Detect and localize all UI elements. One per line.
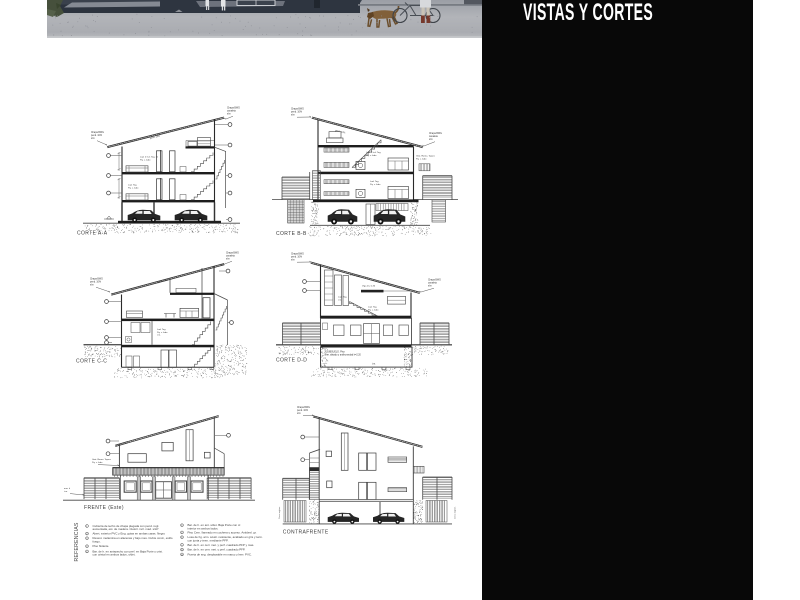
svg-text:CORTE D-D: CORTE D-D: [276, 358, 307, 364]
svg-text:Chapa BWG: Chapa BWG: [227, 108, 240, 110]
svg-text:Chapa BWG: Chapa BWG: [90, 279, 103, 281]
svg-text:Pq. s. lado: Pq. s. lado: [370, 184, 381, 186]
svg-text:s/m: s/m: [90, 284, 94, 286]
svg-text:t.m.: t.m.: [157, 334, 161, 337]
svg-text:Lad. Teg.: Lad. Teg.: [368, 307, 377, 309]
svg-text:Lad. Teg.: Lad. Teg.: [370, 181, 379, 183]
svg-text:t.m.: t.m.: [338, 298, 342, 301]
svg-text:pend. 10%: pend. 10%: [158, 279, 169, 283]
svg-text:CORTE B-B: CORTE B-B: [276, 231, 307, 237]
svg-text:canaleta: canaleta: [226, 254, 235, 257]
svg-text:Pq. s. lado: Pq. s. lado: [128, 187, 139, 189]
svg-text:con junta y term. mediante PFP: con junta y term. mediante PFP.: [188, 538, 229, 542]
svg-text:pend. 10%: pend. 10%: [335, 130, 346, 134]
svg-text:canaleta: canaleta: [227, 109, 236, 112]
svg-text:Pq. s. lado: Pq. s. lado: [140, 159, 151, 161]
svg-text:s/m: s/m: [226, 258, 230, 260]
svg-text:mur. h: mur. h: [64, 487, 71, 490]
svg-text:Lad. Teg.: Lad. Teg.: [338, 297, 347, 299]
svg-text:canaleta: canaleta: [429, 135, 438, 138]
svg-text:s/m: s/m: [297, 413, 301, 415]
svg-text:FRENTE (Este): FRENTE (Este): [84, 505, 124, 511]
svg-text:pend. 10%: pend. 10%: [90, 281, 101, 283]
svg-text:Revest. melamina en alacenas y: Revest. melamina en alacenas y bajo mes.…: [93, 536, 173, 540]
svg-text:Abert. exterior PVC y Eng. gui: Abert. exterior PVC y Eng. guias en amba…: [93, 532, 166, 536]
svg-text:Bar. de h. en cerr. met. y per: Bar. de h. en cerr. met. y perf. cuadrad…: [188, 548, 246, 552]
svg-text:s/m: s/m: [429, 139, 433, 141]
svg-text:Chapa BWG: Chapa BWG: [428, 280, 441, 282]
svg-text:Pq. s. lado: Pq. s. lado: [416, 158, 427, 160]
svg-text:Pq. s. lado: Pq. s. lado: [366, 155, 377, 157]
svg-text:Viga inv. 0.30: Viga inv. 0.30: [362, 286, 376, 288]
svg-text:pend. 10%: pend. 10%: [291, 111, 302, 113]
svg-text:Cerco reglam.: Cerco reglam.: [455, 506, 457, 519]
svg-text:pend. 10%: pend. 10%: [91, 135, 102, 137]
svg-text:Lad. 2 h.d. Teg.: Lad. 2 h.d. Teg.: [366, 152, 381, 154]
svg-text:Chapa BWG: Chapa BWG: [297, 407, 310, 409]
svg-text:s/m: s/m: [227, 113, 231, 115]
svg-text:REFERENCIAS: REFERENCIAS: [74, 522, 80, 561]
svg-text:Grat. Rama. Taparr.: Grat. Rama. Taparr.: [92, 458, 112, 461]
svg-text:10: 10: [181, 550, 184, 552]
svg-text:Chapa BWG: Chapa BWG: [91, 132, 104, 134]
svg-text:CORTE A-A: CORTE A-A: [77, 231, 108, 237]
svg-text:aumentada, est. de madera. Cie: aumentada, est. de madera. Cielorr. incl…: [93, 527, 159, 531]
svg-text:Chapa BWG: Chapa BWG: [291, 254, 304, 256]
svg-text:s/m: s/m: [91, 138, 95, 140]
svg-text:Pq. s. lado: Pq. s. lado: [157, 332, 168, 334]
svg-text:con cristal en ambos lados, s/: con cristal en ambos lados, s/det.: [93, 553, 136, 557]
svg-text:Pq. s. lado: Pq. s. lado: [92, 462, 103, 464]
svg-text:t.m.: t.m.: [372, 363, 376, 366]
svg-text:Lad. 2 h.d. Teg. 11: Lad. 2 h.d. Teg. 11: [140, 157, 159, 159]
svg-text:Piso Cem. llaneado en cochera: Piso Cem. llaneado en cochera y acceso. …: [188, 530, 257, 534]
svg-text:Pq. s. lado: Pq. s. lado: [368, 309, 379, 311]
svg-text:Chapa BWG: Chapa BWG: [291, 109, 304, 111]
svg-text:Chapa BWG: Chapa BWG: [226, 253, 239, 255]
svg-text:11: 11: [181, 554, 184, 556]
svg-text:2 SUBSUELO. Piso: 2 SUBSUELO. Piso: [325, 352, 346, 354]
svg-text:Lad. Teg.: Lad. Teg.: [128, 185, 137, 187]
svg-text:fuego.: fuego.: [93, 539, 101, 543]
svg-text:s/m: s/m: [428, 285, 432, 287]
svg-text:Puerta de seg. desplazable en: Puerta de seg. desplazable en marco y he…: [188, 552, 252, 556]
svg-text:pend. 10%: pend. 10%: [350, 274, 361, 278]
svg-text:Lad. Teg.: Lad. Teg.: [157, 329, 166, 331]
svg-text:Grat. Rama. Taparr.: Grat. Rama. Taparr.: [416, 155, 436, 158]
svg-text:CORTE C-C: CORTE C-C: [76, 359, 107, 365]
svg-text:s/m: s/m: [291, 114, 295, 116]
svg-text:canaleta: canaleta: [428, 281, 437, 284]
svg-text:Bar. de h. en cerr. met. y per: Bar. de h. en cerr. met. y perf. cuadrad…: [188, 543, 255, 547]
svg-text:t.m.: t.m.: [64, 490, 68, 493]
svg-text:pend. 10%: pend. 10%: [297, 410, 308, 412]
svg-text:s/m: s/m: [291, 259, 295, 261]
svg-text:pend. 10%: pend. 10%: [291, 256, 302, 258]
svg-text:cem. alisado y antihumedad h=2: cem. alisado y antihumedad h=2.20: [325, 353, 362, 356]
svg-text:Chapa BWG: Chapa BWG: [429, 133, 442, 135]
svg-text:Piso flotante.: Piso flotante.: [93, 544, 110, 548]
